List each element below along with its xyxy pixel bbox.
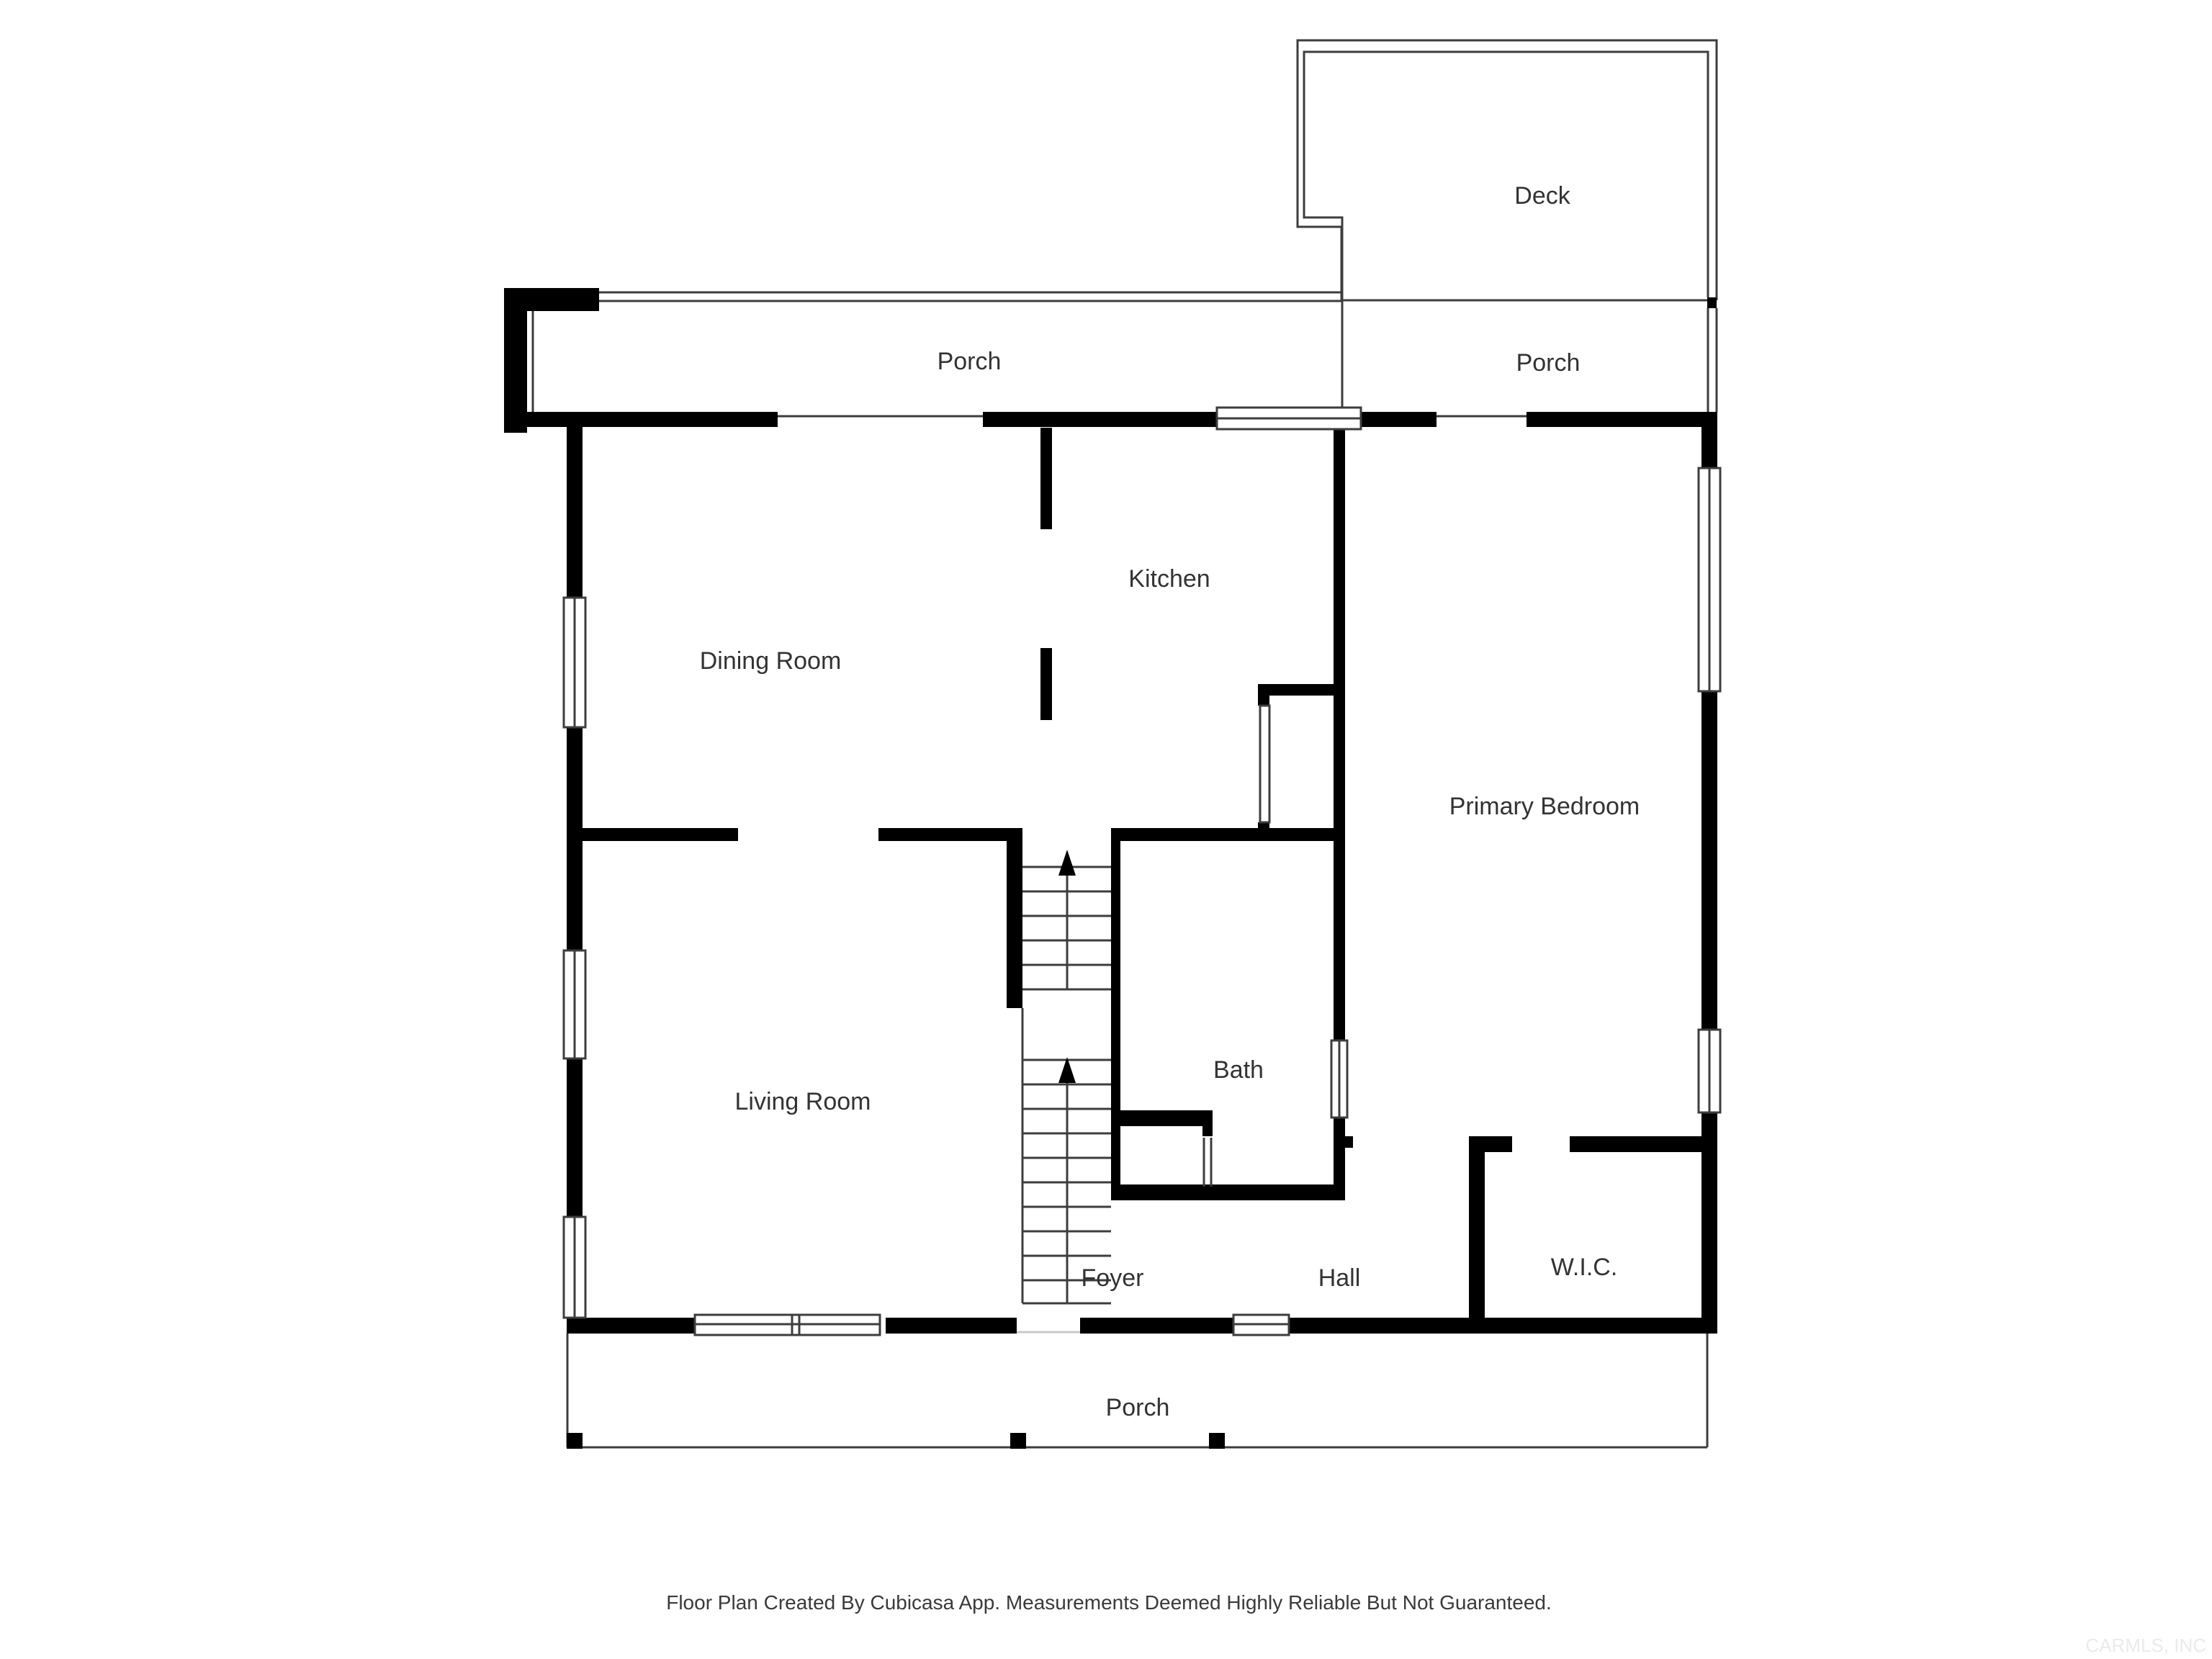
watermark: CARMLS, INC — [2085, 1635, 2206, 1656]
deck-outline — [1298, 40, 1717, 300]
stairs-up-arrow-icon — [1058, 850, 1076, 936]
room-label-kitchen: Kitchen — [1128, 565, 1210, 593]
window-symbol — [564, 950, 585, 1058]
room-label-wic: W.I.C. — [1551, 1254, 1618, 1281]
room-label-living-room: Living Room — [735, 1088, 871, 1115]
floor-plan-page: Deck Porch Porch Dining Room Kitchen Pri… — [0, 0, 2212, 1659]
staircase — [1022, 850, 1111, 1303]
room-label-primary-bedroom: Primary Bedroom — [1449, 793, 1640, 820]
room-label-porch-top-left: Porch — [938, 348, 1002, 375]
room-label-hall: Hall — [1318, 1264, 1361, 1292]
bath-closet-door — [1204, 1138, 1211, 1187]
room-label-porch-bottom: Porch — [1106, 1394, 1170, 1421]
window-symbol — [1699, 1030, 1720, 1112]
window-symbol — [1217, 408, 1361, 429]
window-symbol — [1699, 468, 1720, 691]
room-label-porch-top-right: Porch — [1516, 349, 1581, 377]
footer-disclaimer: Floor Plan Created By Cubicasa App. Meas… — [666, 1591, 1552, 1614]
interior-walls — [567, 427, 1701, 1318]
stairs-up-arrow-icon — [1058, 1057, 1076, 1145]
window-symbol — [564, 1217, 585, 1318]
room-label-foyer: Foyer — [1082, 1264, 1144, 1292]
window-symbol — [695, 1315, 880, 1335]
room-label-bath: Bath — [1213, 1056, 1264, 1084]
porch-bottom-outline — [567, 1334, 1707, 1449]
floor-plan-svg: Deck Porch Porch Dining Room Kitchen Pri… — [0, 0, 2212, 1659]
window-symbol — [564, 598, 585, 727]
room-labels: Deck Porch Porch Dining Room Kitchen Pri… — [700, 182, 1640, 1421]
window-symbol — [1331, 1040, 1347, 1118]
pantry-glass-partition — [1260, 706, 1269, 822]
room-label-deck: Deck — [1514, 182, 1570, 210]
window-symbol — [1233, 1315, 1289, 1335]
room-label-dining-room: Dining Room — [700, 647, 842, 675]
